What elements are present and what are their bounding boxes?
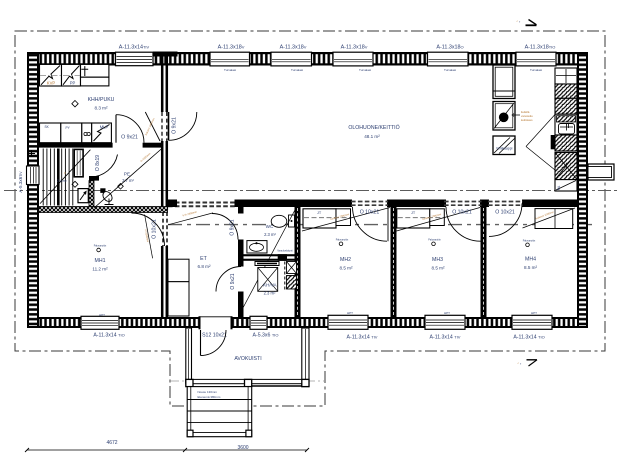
svg-text:PA: PA — [557, 185, 561, 190]
svg-text:S12 10x21: S12 10x21 — [202, 333, 227, 339]
svg-text:MH4: MH4 — [525, 257, 536, 263]
svg-text:JT: JT — [411, 211, 416, 215]
svg-text:O 10x21: O 10x21 — [452, 210, 472, 216]
svg-text:Palovaroitin: Palovaroitin — [523, 240, 536, 243]
svg-text:varustettu: varustettu — [521, 114, 533, 118]
svg-text:Varauloskäynti: Varauloskäynti — [277, 250, 293, 253]
svg-text:O 9x21: O 9x21 — [230, 273, 236, 289]
svg-text:8.5 m²: 8.5 m² — [524, 265, 537, 270]
svg-text:8.5 m²: 8.5 m² — [431, 266, 444, 271]
svg-text:PP: PP — [70, 81, 76, 86]
svg-text:Turvalasi: Turvalasi — [224, 68, 236, 72]
svg-text:11.2 m²: 11.2 m² — [92, 267, 108, 272]
svg-text:OLOHUONE/KEITTIÖ: OLOHUONE/KEITTIÖ — [348, 124, 399, 131]
svg-text:O 9x21: O 9x21 — [121, 135, 138, 141]
svg-text:Palovaroitin: Palovaroitin — [336, 239, 349, 242]
svg-text:JT: JT — [317, 211, 322, 215]
svg-text:MH1: MH1 — [95, 258, 106, 264]
svg-text:2.4 m²: 2.4 m² — [57, 179, 67, 183]
svg-text:Turvalasi: Turvalasi — [291, 68, 303, 72]
svg-text:O 10x21: O 10x21 — [152, 219, 158, 239]
svg-text:Turvalasi: Turvalasi — [444, 68, 456, 72]
svg-text:PE: PE — [124, 172, 130, 177]
svg-text:MH3: MH3 — [432, 257, 443, 263]
svg-text:ET: ET — [200, 256, 207, 262]
svg-text:A-11.3x18V: A-11.3x18V — [218, 45, 245, 51]
svg-text:AVOKUISTI: AVOKUISTI — [234, 356, 261, 362]
svg-text:Viinikaappi: Viinikaappi — [496, 147, 513, 151]
svg-text:Turvalasi: Turvalasi — [530, 68, 542, 72]
svg-text:2.3 m²: 2.3 m² — [264, 291, 276, 296]
svg-text:Palovaroitin: Palovaroitin — [428, 239, 441, 242]
svg-text:Nousu 130mm: Nousu 130mm — [198, 390, 218, 394]
svg-text:‹: ‹ — [518, 362, 519, 366]
svg-text:3600: 3600 — [237, 445, 248, 451]
svg-text:A-11.3x18V: A-11.3x18V — [280, 45, 307, 51]
svg-text:MH2: MH2 — [340, 257, 351, 263]
svg-text:Turvalasi: Turvalasi — [359, 68, 371, 72]
svg-text:A-11.3x18V: A-11.3x18V — [341, 45, 368, 51]
svg-text:liedellä: liedellä — [521, 110, 530, 114]
svg-text:8.3 m²: 8.3 m² — [94, 106, 107, 111]
svg-text:KHH/PUKU: KHH/PUKU — [88, 97, 115, 103]
svg-text:keittotaso: keittotaso — [521, 118, 533, 122]
svg-text:MLP: MLP — [100, 125, 109, 130]
svg-text:Etenemä 380mm: Etenemä 380mm — [198, 395, 221, 399]
svg-text:2.3 m²: 2.3 m² — [264, 232, 276, 237]
svg-text:O 8x19: O 8x19 — [95, 155, 101, 171]
svg-text:O 10x21: O 10x21 — [360, 210, 380, 216]
svg-text:‹: ‹ — [517, 20, 518, 24]
svg-text:O 9x21: O 9x21 — [230, 219, 236, 235]
svg-text:48.1 m²: 48.1 m² — [364, 134, 380, 139]
svg-text:O 10x21: O 10x21 — [495, 210, 515, 216]
svg-text:6.8 m²: 6.8 m² — [197, 264, 210, 269]
svg-text:O 9x21: O 9x21 — [172, 117, 178, 134]
svg-text:HPT: HPT — [444, 311, 450, 315]
svg-text:A-5.3x6TIV: A-5.3x6TIV — [18, 171, 23, 193]
svg-text:Palovaroitin: Palovaroitin — [94, 245, 107, 248]
svg-text:HPT: HPT — [347, 311, 353, 315]
svg-text:WC: WC — [266, 224, 274, 229]
svg-text:HPT: HPT — [99, 313, 105, 317]
svg-text:4672: 4672 — [106, 440, 117, 446]
svg-text:KVP: KVP — [47, 81, 56, 86]
svg-text:8.5 m²: 8.5 m² — [339, 266, 352, 271]
svg-text:KH/VA: KH/VA — [263, 283, 277, 288]
svg-text:A-11.3x18O: A-11.3x18O — [436, 45, 463, 51]
svg-text:HPT: HPT — [531, 311, 537, 315]
